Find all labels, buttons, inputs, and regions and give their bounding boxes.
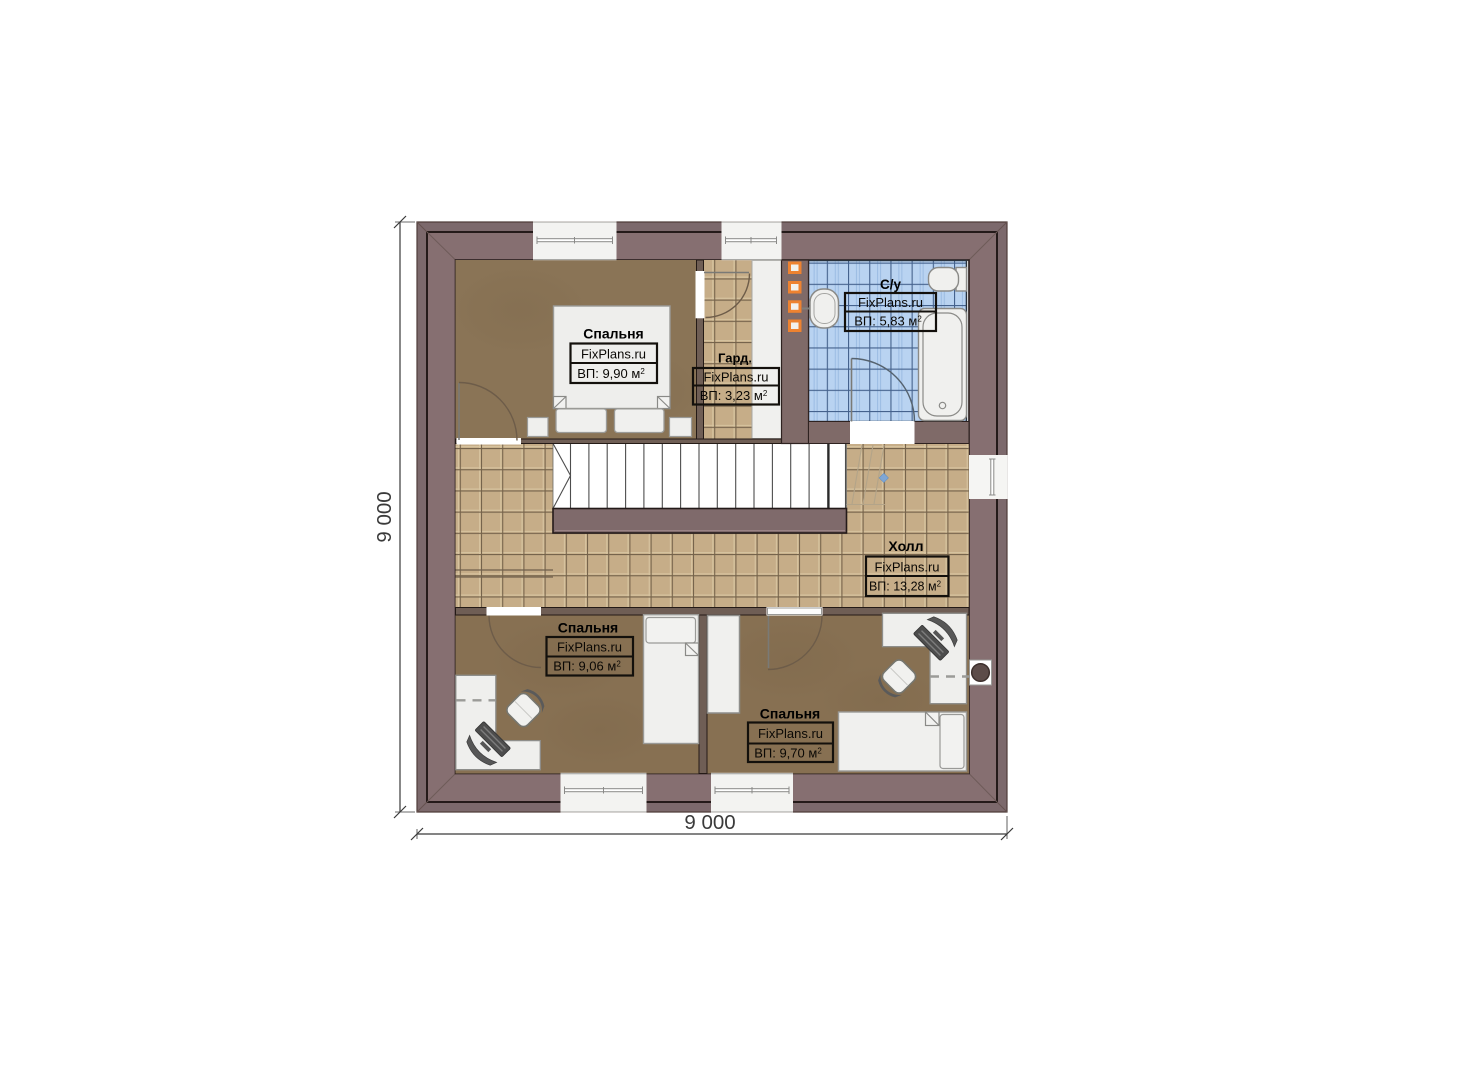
svg-text:ВП: 9,06 м2: ВП: 9,06 м2: [553, 659, 621, 674]
svg-text:FixPlans.ru: FixPlans.ru: [858, 295, 923, 310]
svg-text:9 000: 9 000: [373, 491, 396, 542]
svg-text:9 000: 9 000: [684, 811, 735, 834]
svg-text:ВП: 9,90 м2: ВП: 9,90 м2: [577, 366, 645, 381]
svg-text:Холл: Холл: [888, 538, 923, 554]
svg-text:FixPlans.ru: FixPlans.ru: [581, 347, 646, 362]
svg-text:FixPlans.ru: FixPlans.ru: [874, 560, 939, 575]
svg-text:Спальня: Спальня: [583, 326, 643, 342]
svg-text:ВП: 9,70 м2: ВП: 9,70 м2: [754, 746, 822, 761]
svg-text:FixPlans.ru: FixPlans.ru: [557, 640, 622, 655]
svg-text:ВП: 3,23 м2: ВП: 3,23 м2: [700, 388, 768, 403]
svg-text:Спальня: Спальня: [558, 620, 618, 636]
svg-text:ВП: 13,28 м2: ВП: 13,28 м2: [869, 580, 942, 594]
svg-text:FixPlans.ru: FixPlans.ru: [758, 726, 823, 741]
svg-text:С/у: С/у: [880, 277, 902, 292]
svg-text:FixPlans.ru: FixPlans.ru: [703, 370, 768, 385]
svg-text:Гард.: Гард.: [718, 351, 752, 366]
svg-text:ВП: 5,83 м2: ВП: 5,83 м2: [854, 314, 922, 329]
svg-text:Спальня: Спальня: [760, 706, 820, 722]
